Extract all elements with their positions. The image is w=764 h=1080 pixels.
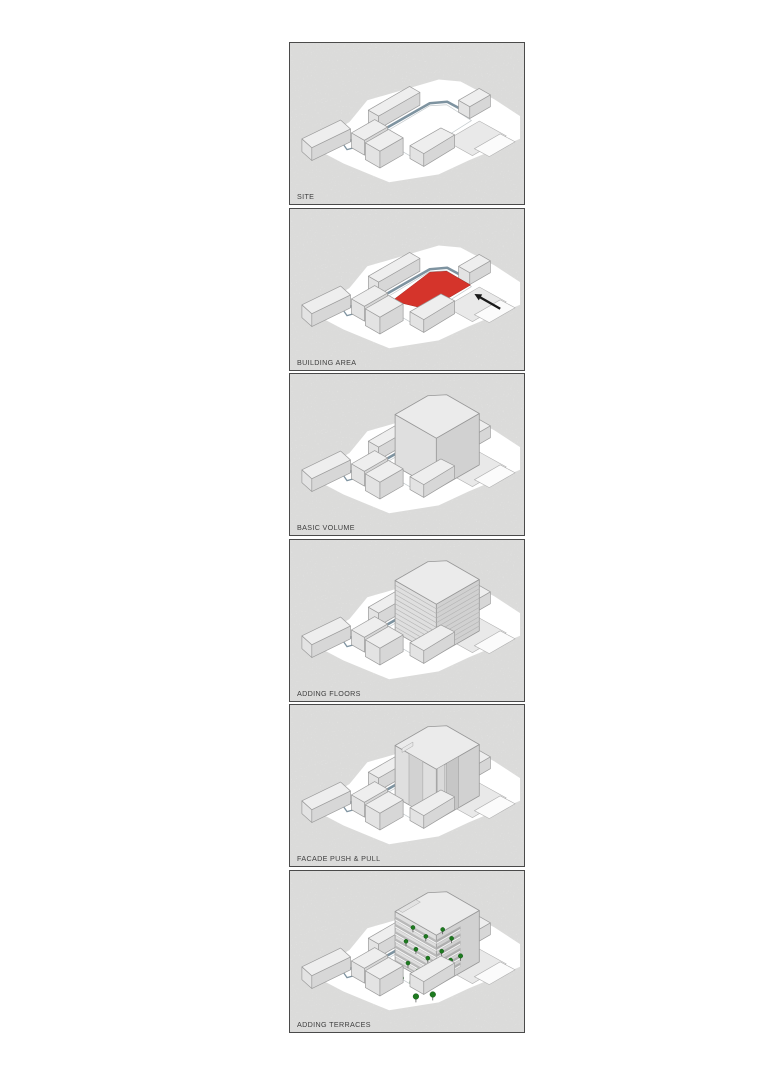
panel-facade-push-pull: FACADE PUSH & PULL: [289, 704, 525, 867]
facade-push-pull-illustration: [290, 705, 524, 866]
adding-floors-illustration: [290, 540, 524, 701]
panel-label: ADDING TERRACES: [297, 1021, 371, 1029]
panel-label: BUILDING AREA: [297, 359, 356, 367]
site-illustration: [290, 43, 524, 204]
panel-site: SITE: [289, 42, 525, 205]
panel-adding-floors: ADDING FLOORS: [289, 539, 525, 702]
panel-label: BASIC VOLUME: [297, 524, 355, 532]
page: { "diagram": { "panels": [ { "id": "site…: [0, 0, 764, 1080]
panel-basic-volume: BASIC VOLUME: [289, 373, 525, 536]
adding-terraces-illustration: [290, 871, 524, 1032]
panel-label: ADDING FLOORS: [297, 690, 361, 698]
panel-label: SITE: [297, 193, 314, 201]
panel-label: FACADE PUSH & PULL: [297, 855, 380, 863]
panel-building-area: BUILDING AREA: [289, 208, 525, 371]
diagram-strip: SITE BUILDING AREA BASIC VOLUME: [289, 42, 525, 1033]
panel-adding-terraces: ADDING TERRACES: [289, 870, 525, 1033]
basic-volume-illustration: [290, 374, 524, 535]
building-area-illustration: [290, 209, 524, 370]
